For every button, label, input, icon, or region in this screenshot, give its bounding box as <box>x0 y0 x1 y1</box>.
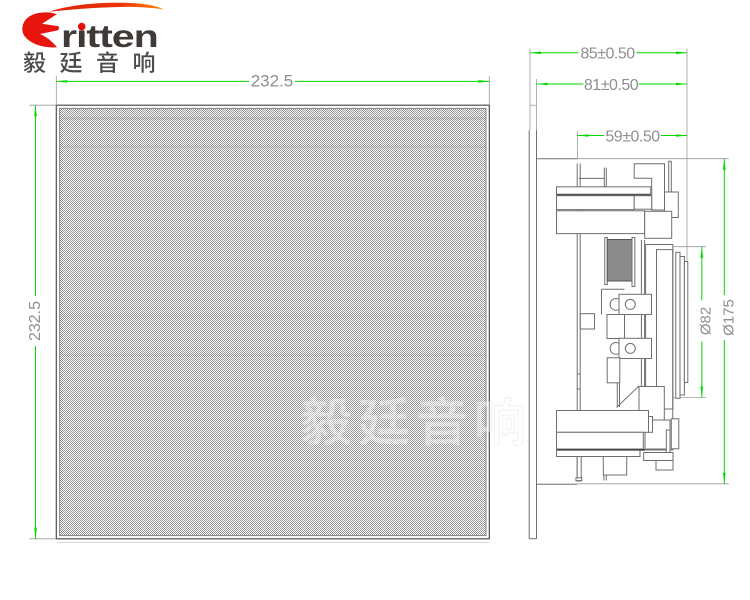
svg-text:232.5: 232.5 <box>251 72 294 91</box>
svg-text:Ø175: Ø175 <box>721 299 738 336</box>
svg-text:Ø82: Ø82 <box>698 307 715 335</box>
svg-text:rıtten: rıtten <box>61 19 158 54</box>
svg-text:232.5: 232.5 <box>27 301 44 341</box>
svg-text:81±0.50: 81±0.50 <box>584 77 639 94</box>
svg-text:59±0.50: 59±0.50 <box>605 128 660 145</box>
svg-text:85±0.50: 85±0.50 <box>580 46 635 63</box>
